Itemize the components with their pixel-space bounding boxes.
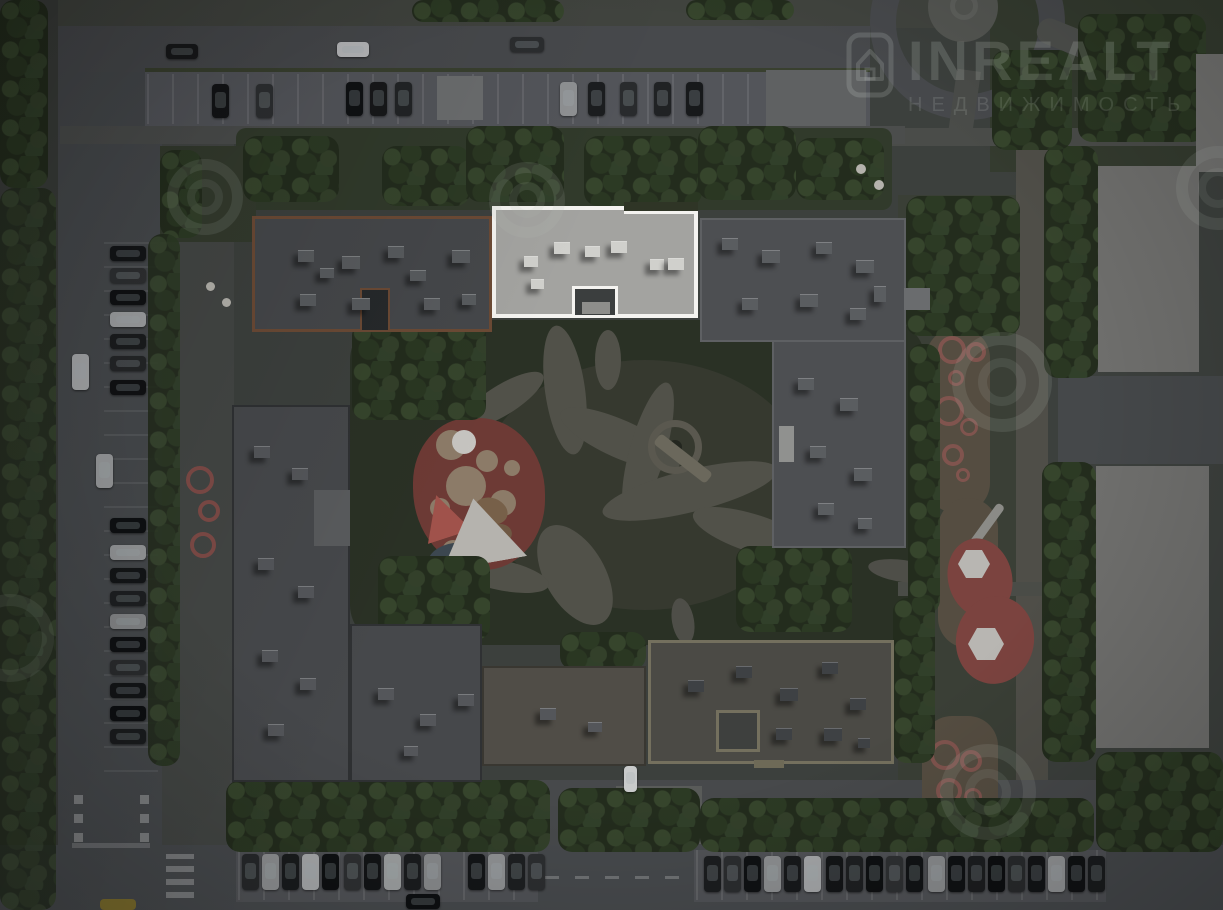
car — [322, 854, 339, 890]
car-van — [96, 454, 113, 488]
building-top-center-step — [624, 202, 698, 211]
rooftop-unit — [824, 728, 842, 741]
rooftop-unit — [858, 518, 872, 529]
rooftop-unit — [816, 242, 832, 254]
rooftop-unit — [298, 250, 314, 262]
umbrella-dot — [222, 298, 231, 307]
tree-cluster — [1044, 146, 1098, 378]
tree-cluster — [148, 234, 180, 766]
rooftop-unit — [462, 294, 476, 305]
rooftop-unit — [410, 270, 426, 281]
rooftop-unit — [388, 246, 404, 258]
car — [110, 334, 146, 349]
rooftop-unit — [840, 398, 858, 411]
building-top-center-notch-inner — [582, 302, 610, 314]
car — [468, 854, 485, 890]
rooftop-unit — [810, 446, 826, 458]
car — [242, 854, 259, 890]
tree-cluster — [698, 126, 796, 200]
car — [110, 380, 146, 395]
rooftop-unit — [585, 246, 600, 257]
rooftop-unit — [458, 694, 474, 706]
car — [110, 683, 146, 698]
car — [588, 82, 605, 116]
rooftop-unit — [798, 378, 814, 390]
car — [948, 856, 965, 892]
rooftop-unit — [854, 468, 872, 481]
tree-cluster — [700, 798, 1094, 852]
rooftop-unit — [420, 714, 436, 726]
rooftop-unit — [268, 724, 284, 736]
car — [826, 856, 843, 892]
car — [744, 856, 761, 892]
car — [886, 856, 903, 892]
building-bottom-center-notch — [716, 710, 760, 752]
car — [110, 545, 146, 560]
rooftop-unit — [262, 650, 278, 662]
car — [110, 706, 146, 721]
car — [928, 856, 945, 892]
car — [110, 568, 146, 583]
car — [988, 856, 1005, 892]
rooftop-unit — [650, 259, 664, 270]
car — [528, 854, 545, 890]
rooftop-unit — [452, 250, 470, 263]
tree-cluster — [686, 0, 794, 20]
car — [1068, 856, 1085, 892]
tree-cluster — [1042, 462, 1096, 762]
building-right-wing-canopy — [779, 426, 794, 462]
umbrella-dot — [206, 282, 215, 291]
tree-cluster — [796, 138, 884, 200]
watermark-ring — [187, 179, 223, 215]
rooftop-unit — [298, 586, 314, 598]
car — [384, 854, 401, 890]
rooftop-unit — [254, 446, 270, 458]
tree-cluster — [1078, 14, 1206, 142]
tree-cluster — [1096, 752, 1223, 852]
rooftop-unit — [874, 286, 886, 302]
top-right-pad — [766, 70, 866, 128]
tree-cluster — [382, 146, 470, 206]
building-top-center-step-border — [624, 211, 698, 214]
car — [364, 854, 381, 890]
rooftop-unit — [554, 242, 570, 254]
watermark-ring — [509, 182, 545, 218]
car — [110, 637, 146, 652]
left-pink-ring — [186, 466, 214, 494]
car — [110, 614, 146, 629]
pink-ring — [942, 444, 964, 466]
rooftop-unit — [822, 662, 838, 674]
car — [784, 856, 801, 892]
genplan-render: INREALT НЕДВИЖИМОСТЬ — [0, 0, 1223, 910]
neighbor-building-south — [1096, 466, 1209, 748]
tree-cluster — [560, 632, 646, 670]
rooftop-unit — [611, 241, 627, 253]
rooftop-unit — [850, 698, 866, 710]
rooftop-unit — [404, 746, 418, 756]
rooftop-unit — [300, 678, 316, 690]
rooftop-unit — [780, 688, 798, 701]
car — [370, 82, 387, 116]
car — [282, 854, 299, 890]
building-bottom-center-entry — [754, 760, 784, 768]
car — [337, 42, 369, 57]
building-right-wing-top[interactable] — [700, 218, 906, 342]
stop-line — [72, 843, 150, 848]
car — [166, 44, 198, 59]
car — [110, 660, 146, 675]
rooftop-unit — [850, 308, 866, 320]
car — [510, 37, 544, 52]
crosswalk-column-1 — [74, 788, 83, 842]
watermark-ring — [965, 769, 1011, 815]
car — [686, 82, 703, 116]
car — [804, 856, 821, 892]
rooftop-unit — [342, 256, 360, 269]
car — [866, 856, 883, 892]
car — [764, 856, 781, 892]
car — [620, 82, 637, 116]
playground-circle — [476, 450, 498, 472]
car — [1028, 856, 1045, 892]
rooftop-unit — [540, 708, 556, 720]
rooftop-unit — [424, 298, 440, 310]
car — [724, 856, 741, 892]
yellow-object — [100, 899, 136, 910]
rooftop-unit — [742, 298, 758, 310]
rooftop-unit — [668, 258, 684, 270]
car — [968, 856, 985, 892]
rooftop-unit — [258, 558, 274, 570]
tree-cluster — [412, 0, 564, 22]
top-kiosk — [437, 76, 483, 120]
car — [110, 246, 146, 261]
umbrella-dot — [874, 180, 884, 190]
tree-cluster — [992, 50, 1072, 150]
car — [110, 312, 146, 327]
car — [488, 854, 505, 890]
car — [110, 729, 146, 744]
rooftop-unit — [588, 722, 602, 732]
car — [110, 356, 146, 371]
tree-cluster — [584, 136, 702, 206]
car — [846, 856, 863, 892]
tree-cluster — [558, 788, 700, 852]
car — [704, 856, 721, 892]
car-driving — [72, 354, 89, 390]
rooftop-unit — [531, 279, 544, 289]
umbrella-dot — [856, 164, 866, 174]
car-entrance — [624, 766, 637, 792]
building-south-annex[interactable] — [482, 666, 646, 766]
car — [110, 290, 146, 305]
car — [110, 268, 146, 283]
pink-ring — [956, 468, 970, 482]
rooftop-unit — [524, 256, 538, 267]
right-road-horizontal — [1058, 376, 1223, 464]
rooftop-unit — [762, 250, 780, 263]
car — [508, 854, 525, 890]
car — [212, 84, 229, 118]
lane-dash-bottom — [545, 876, 695, 879]
car — [906, 856, 923, 892]
tree-cluster — [352, 322, 486, 420]
rooftop-unit — [858, 738, 870, 748]
car — [424, 854, 441, 890]
building-top-left-notch — [360, 288, 390, 332]
rooftop-unit — [688, 680, 704, 692]
car — [110, 518, 146, 533]
rooftop-unit — [736, 666, 752, 678]
rooftop-unit — [292, 468, 308, 480]
rooftop-unit — [776, 728, 792, 740]
rooftop-unit — [818, 503, 834, 515]
tree-cluster — [736, 546, 852, 632]
rooftop-unit — [320, 268, 334, 278]
tree-cluster — [0, 188, 56, 910]
car — [1048, 856, 1065, 892]
left-pink-ring — [198, 500, 220, 522]
tree-cluster — [226, 780, 550, 852]
rooftop-unit — [300, 294, 316, 306]
car-driving — [406, 894, 440, 909]
playground-dome — [452, 430, 476, 454]
car — [262, 854, 279, 890]
rooftop-unit — [352, 298, 370, 310]
tree-cluster — [0, 0, 48, 188]
rooftop-unit — [856, 260, 874, 273]
crosswalk-column-2 — [140, 788, 149, 842]
car — [344, 854, 361, 890]
small-crosswalk — [166, 854, 194, 898]
tree-cluster — [908, 344, 940, 614]
building-west-wing[interactable] — [232, 405, 350, 782]
car — [302, 854, 319, 890]
tree-cluster — [243, 136, 339, 202]
car — [256, 84, 273, 118]
tree-cluster — [893, 598, 935, 763]
building-west-wing-patch — [314, 490, 350, 546]
car — [1008, 856, 1025, 892]
rooftop-unit — [722, 238, 738, 250]
car — [404, 854, 421, 890]
left-pink-ring — [190, 532, 216, 558]
car — [110, 591, 146, 606]
car — [346, 82, 363, 116]
car — [395, 82, 412, 116]
car — [1088, 856, 1105, 892]
rooftop-unit — [800, 294, 818, 307]
car — [560, 82, 577, 116]
car — [654, 82, 671, 116]
playground-circle — [504, 460, 520, 476]
building-right-wing-annex — [904, 288, 930, 310]
courtyard-path — [595, 330, 621, 390]
watermark-ring — [978, 358, 1026, 406]
tree-cluster — [906, 196, 1020, 336]
rooftop-unit — [378, 688, 394, 700]
